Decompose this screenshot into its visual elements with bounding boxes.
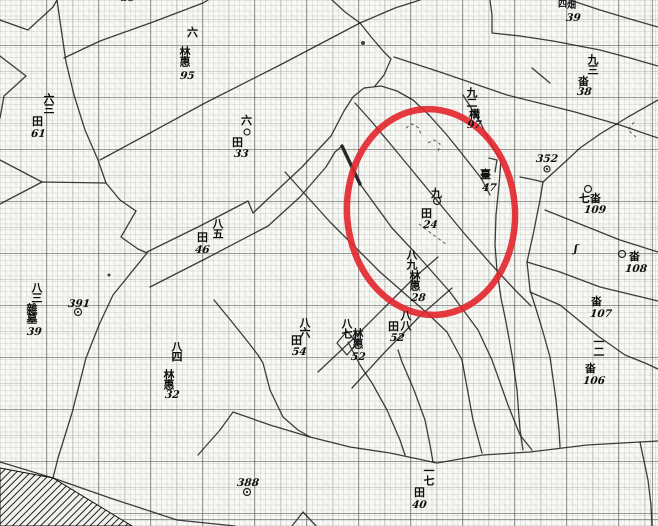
boundary-line	[545, 210, 658, 252]
hatched-area	[0, 468, 132, 526]
cadastral-map-sheet: 39六林惠95四畑39九三畓38六三田61六田33九二構97臺47九田24八九林…	[0, 0, 658, 526]
parcel-label: 畓	[591, 296, 602, 307]
parcel-label: 47	[481, 183, 497, 194]
parcel-label: 田	[197, 232, 208, 243]
boundary-line	[532, 68, 550, 83]
parcel-label: 52	[350, 352, 366, 363]
parcel-label: 95	[179, 71, 195, 82]
parcel-label: 畓	[629, 251, 640, 262]
boundary-line	[543, 100, 658, 182]
parcel-label: 一二	[593, 336, 604, 356]
pencil-dash-mark	[428, 140, 440, 152]
boundary-line	[640, 442, 652, 526]
parcel-label: 108	[624, 264, 647, 275]
parcel-label: 林惠	[163, 369, 174, 389]
boundary-line	[0, 182, 42, 204]
boundary-line	[355, 103, 531, 306]
parcel-label: 九	[431, 188, 442, 199]
parcel-label: 33	[233, 149, 249, 160]
parcel-label: 六	[241, 115, 252, 126]
boundary-line	[398, 350, 433, 462]
boundary-line	[214, 300, 310, 437]
parcel-label: 40	[411, 500, 427, 511]
parcel-label: 田	[32, 116, 43, 127]
parcel-label: 109	[583, 205, 606, 216]
parcel-label: 九二	[466, 87, 477, 107]
boundary-lines-layer	[0, 0, 658, 526]
parcel-label: 52	[389, 333, 405, 344]
parcel-label: 六三	[43, 93, 54, 113]
parcel-label: 林惠	[179, 46, 190, 66]
boundary-line	[53, 253, 147, 478]
ink-dot	[361, 41, 365, 45]
parcel-label: 391	[67, 299, 90, 310]
parcel-label: 雜墓	[26, 303, 37, 323]
parcel-label: 28	[410, 293, 426, 304]
parcel-label: 38	[576, 87, 592, 98]
parcel-label: 39	[120, 0, 136, 4]
parcel-label: 388	[236, 478, 259, 489]
survey-marker-circle	[619, 251, 626, 258]
parcel-label: 39	[565, 13, 581, 24]
boundary-line	[0, 0, 57, 30]
survey-marker-dot	[546, 168, 548, 170]
boundary-line	[57, 0, 136, 211]
ink-dot	[108, 274, 111, 277]
parcel-label: 54	[291, 347, 307, 358]
boundary-line	[520, 177, 560, 447]
survey-marker-dot	[246, 491, 248, 493]
parcel-label: 九三	[587, 54, 598, 74]
boundary-line	[0, 160, 42, 182]
parcel-label: 61	[30, 129, 46, 140]
boundary-line	[570, 0, 658, 27]
parcel-label: 林惠	[409, 270, 420, 290]
parcel-label: 107	[589, 309, 612, 320]
parcel-label: 臺	[480, 169, 491, 180]
parcel-label: 106	[582, 376, 605, 387]
parcel-label: 97	[466, 120, 482, 131]
parcel-label: 八四	[171, 341, 182, 361]
survey-marker-dot	[77, 311, 79, 313]
parcel-label: 四	[558, 1, 567, 10]
parcel-label: 七畓	[579, 193, 601, 204]
parcel-label: 八三	[31, 282, 42, 302]
parcel-label: 一七	[423, 465, 434, 485]
boundary-line	[121, 211, 147, 253]
parcel-label: 39	[26, 327, 42, 338]
parcel-label: 田	[421, 208, 432, 219]
parcel-label: 八五	[212, 218, 223, 238]
parcel-label: 六	[187, 27, 198, 38]
parcel-label: 32	[164, 390, 180, 401]
boundary-line	[292, 512, 316, 526]
boundary-line	[150, 146, 342, 287]
pencil-dash-mark	[406, 124, 421, 135]
parcel-label: 畓	[585, 363, 596, 374]
boundary-line	[394, 57, 658, 138]
boundary-line	[100, 23, 360, 160]
parcel-label: 八八	[400, 310, 411, 330]
parcel-label: 352	[535, 154, 558, 165]
parcel-label: 林惠	[352, 328, 363, 348]
boundary-line	[332, 0, 360, 23]
boundary-line	[0, 56, 26, 118]
boundary-line	[42, 182, 106, 183]
parcel-label: 田	[232, 137, 243, 148]
parcel-label: 田	[388, 321, 399, 332]
parcel-label: 畑	[567, 2, 576, 11]
survey-marker-circle	[244, 129, 250, 135]
parcel-label: 24	[422, 220, 438, 231]
boundary-line	[360, 23, 391, 86]
parcel-label: 46	[194, 245, 210, 256]
parcel-label: 田	[414, 487, 425, 498]
boundary-line	[360, 0, 420, 23]
parcel-label: 田	[291, 335, 302, 346]
parcel-label: 八九	[406, 249, 417, 269]
